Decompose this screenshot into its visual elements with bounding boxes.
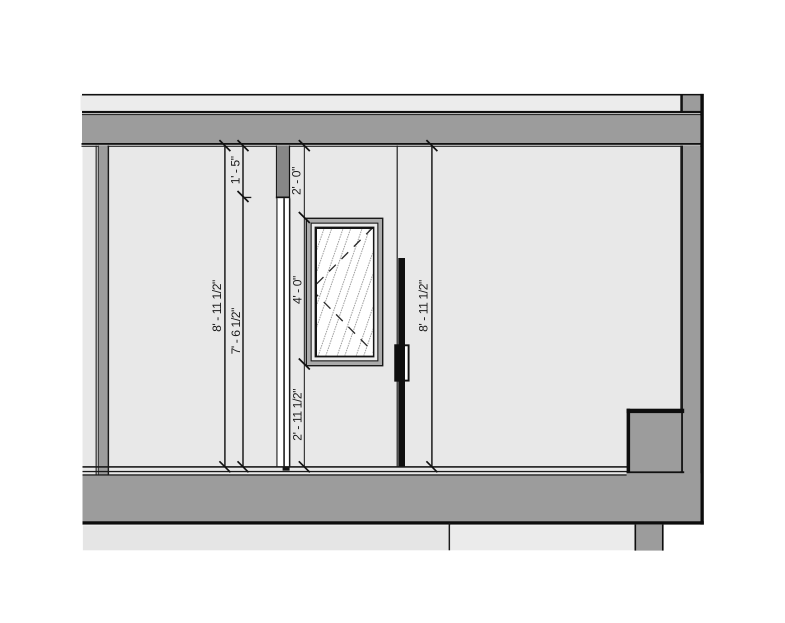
svg-text:4' - 0": 4' - 0"	[291, 276, 305, 304]
svg-text:2' - 11 1/2": 2' - 11 1/2"	[291, 389, 305, 441]
svg-text:8' - 11 1/2": 8' - 11 1/2"	[210, 280, 224, 332]
svg-text:1' - 5": 1' - 5"	[229, 156, 243, 184]
svg-text:8' - 11 1/2": 8' - 11 1/2"	[417, 280, 431, 332]
svg-text:2' - 0": 2' - 0"	[289, 167, 303, 195]
svg-text:7' - 6 1/2": 7' - 6 1/2"	[229, 308, 243, 355]
